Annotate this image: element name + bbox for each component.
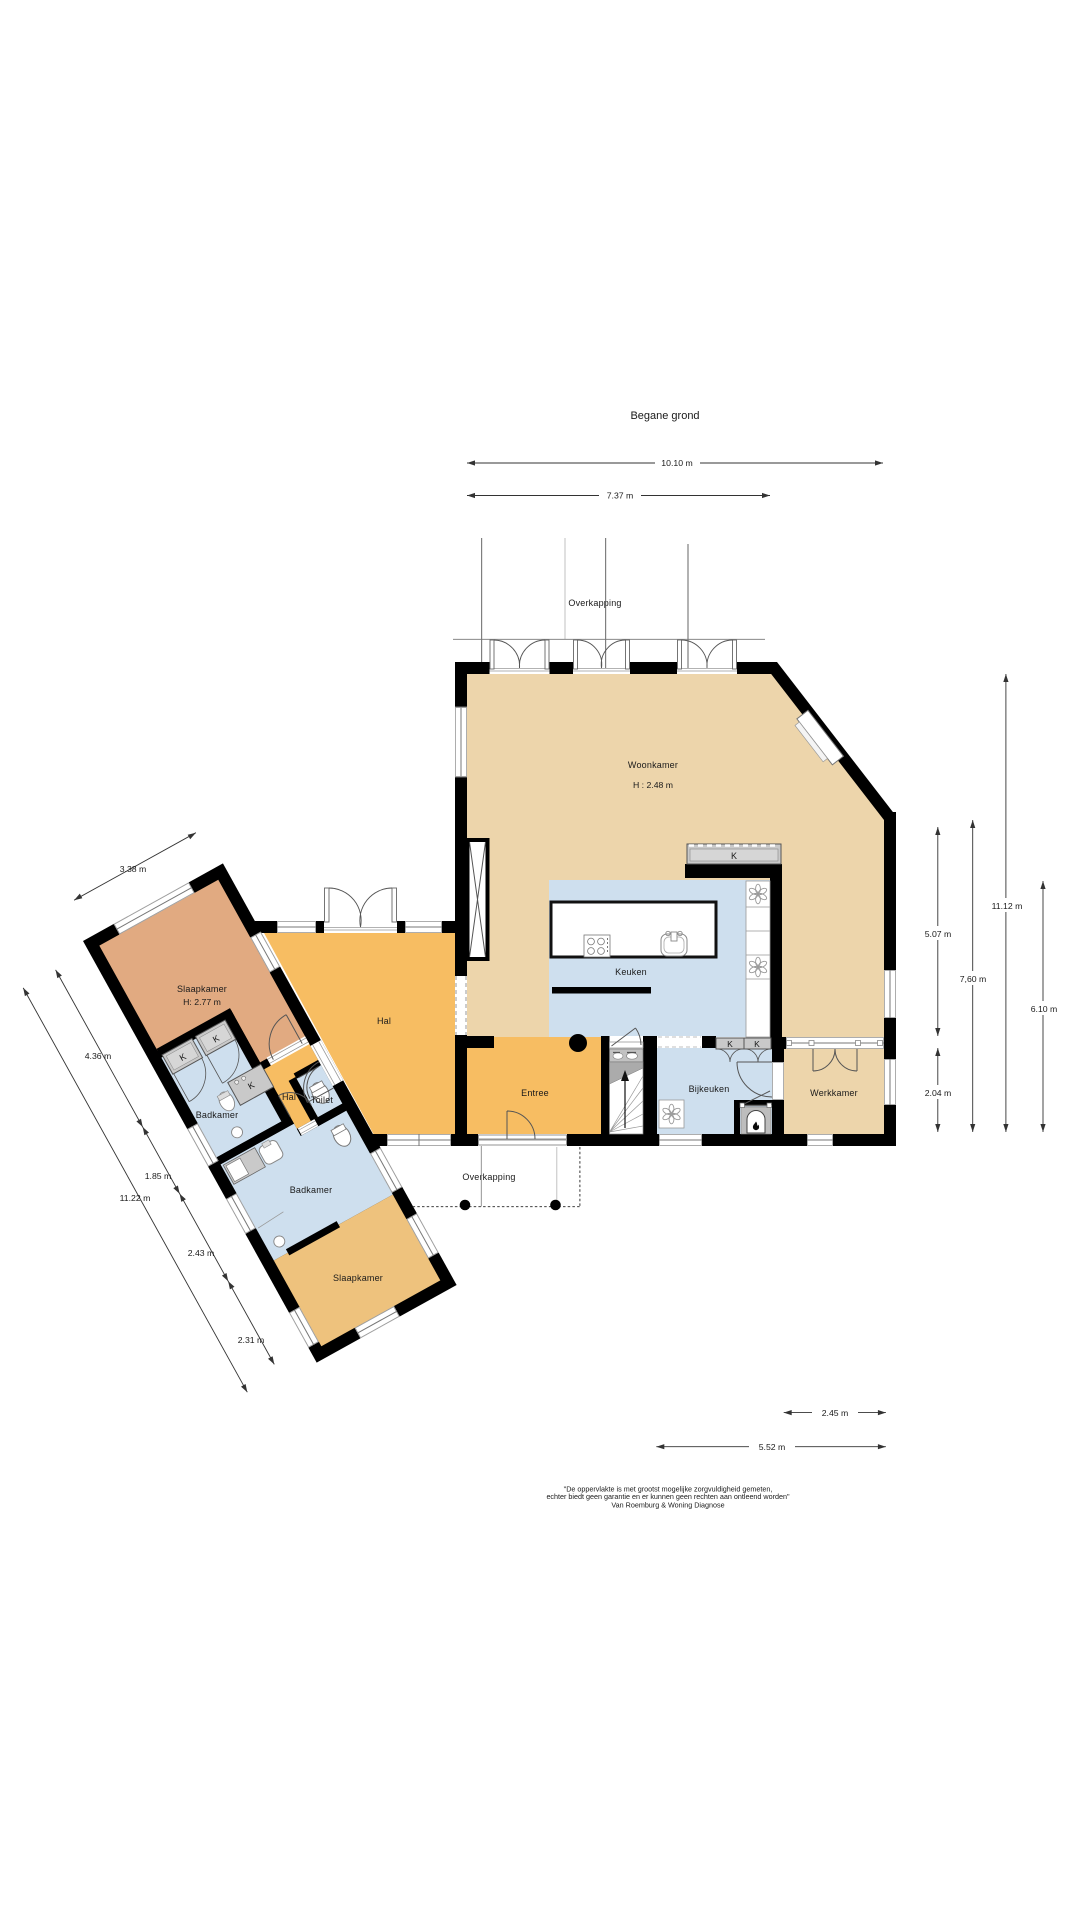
svg-text:11.12 m: 11.12 m bbox=[992, 901, 1023, 911]
svg-text:Overkapping: Overkapping bbox=[568, 598, 621, 608]
svg-text:2.31 m: 2.31 m bbox=[238, 1335, 265, 1345]
svg-text:H : 2.48 m: H : 2.48 m bbox=[633, 780, 673, 790]
svg-text:Overkapping: Overkapping bbox=[462, 1172, 515, 1182]
svg-text:Slaapkamer: Slaapkamer bbox=[177, 984, 227, 994]
svg-text:Van Roemburg & Woning Diagnose: Van Roemburg & Woning Diagnose bbox=[611, 1501, 724, 1510]
svg-text:Badkamer: Badkamer bbox=[290, 1185, 333, 1195]
svg-text:2.45 m: 2.45 m bbox=[822, 1408, 849, 1418]
svg-text:6.10 m: 6.10 m bbox=[1031, 1004, 1058, 1014]
svg-text:Begane grond: Begane grond bbox=[630, 410, 699, 422]
svg-text:7.37 m: 7.37 m bbox=[607, 491, 634, 501]
svg-text:Keuken: Keuken bbox=[615, 967, 647, 977]
svg-text:Woonkamer: Woonkamer bbox=[628, 760, 678, 770]
svg-text:Bijkeuken: Bijkeuken bbox=[689, 1084, 730, 1094]
svg-text:2.04 m: 2.04 m bbox=[925, 1088, 952, 1098]
svg-text:Werkkamer: Werkkamer bbox=[810, 1088, 858, 1098]
svg-text:3.38 m: 3.38 m bbox=[120, 864, 147, 874]
svg-text:1.85 m: 1.85 m bbox=[145, 1171, 172, 1181]
svg-text:K: K bbox=[731, 851, 737, 861]
svg-text:Slaapkamer: Slaapkamer bbox=[333, 1273, 383, 1283]
svg-text:5.07 m: 5.07 m bbox=[925, 929, 952, 939]
svg-text:5.52 m: 5.52 m bbox=[759, 1442, 786, 1452]
svg-text:11.22 m: 11.22 m bbox=[120, 1193, 151, 1203]
svg-text:2.43 m: 2.43 m bbox=[188, 1248, 215, 1258]
svg-text:Hal: Hal bbox=[377, 1016, 391, 1026]
svg-text:K: K bbox=[727, 1039, 733, 1049]
svg-text:K: K bbox=[754, 1039, 760, 1049]
svg-text:Entree: Entree bbox=[521, 1088, 549, 1098]
svg-text:4.36 m: 4.36 m bbox=[85, 1051, 112, 1061]
svg-text:7,60 m: 7,60 m bbox=[960, 974, 987, 984]
svg-text:H: 2.77 m: H: 2.77 m bbox=[183, 997, 221, 1007]
svg-text:Badkamer: Badkamer bbox=[196, 1110, 239, 1120]
svg-text:10.10 m: 10.10 m bbox=[661, 458, 692, 468]
svg-text:Hal: Hal bbox=[282, 1092, 296, 1102]
svg-text:Toilet: Toilet bbox=[311, 1095, 334, 1105]
